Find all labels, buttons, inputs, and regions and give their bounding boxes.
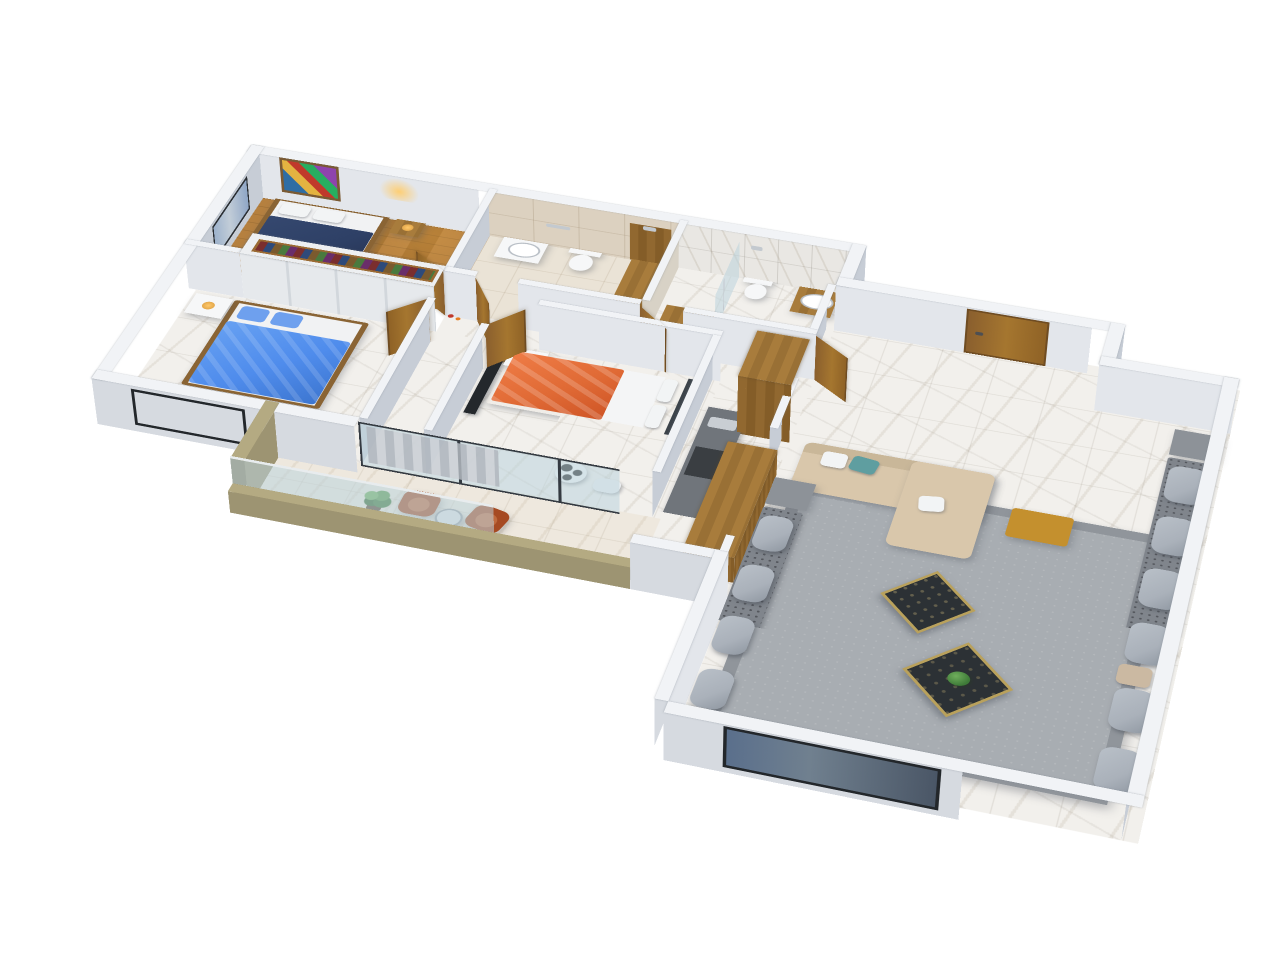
render-scene xyxy=(0,0,1280,960)
shower-pole-icon xyxy=(723,278,724,312)
kitchen-sink xyxy=(707,416,739,431)
table-lamp-icon xyxy=(400,224,415,232)
shower-head-icon xyxy=(751,245,763,251)
door-handle-icon xyxy=(975,331,983,336)
sink-bathroom1 xyxy=(505,241,544,260)
glass-frame-mullion xyxy=(558,460,562,502)
towel-bar xyxy=(546,223,570,230)
pillow-white xyxy=(918,495,945,512)
apartment-floorplan xyxy=(0,189,1248,856)
wall-hall-seg1 xyxy=(443,271,477,322)
table-lamp-icon xyxy=(200,301,217,310)
